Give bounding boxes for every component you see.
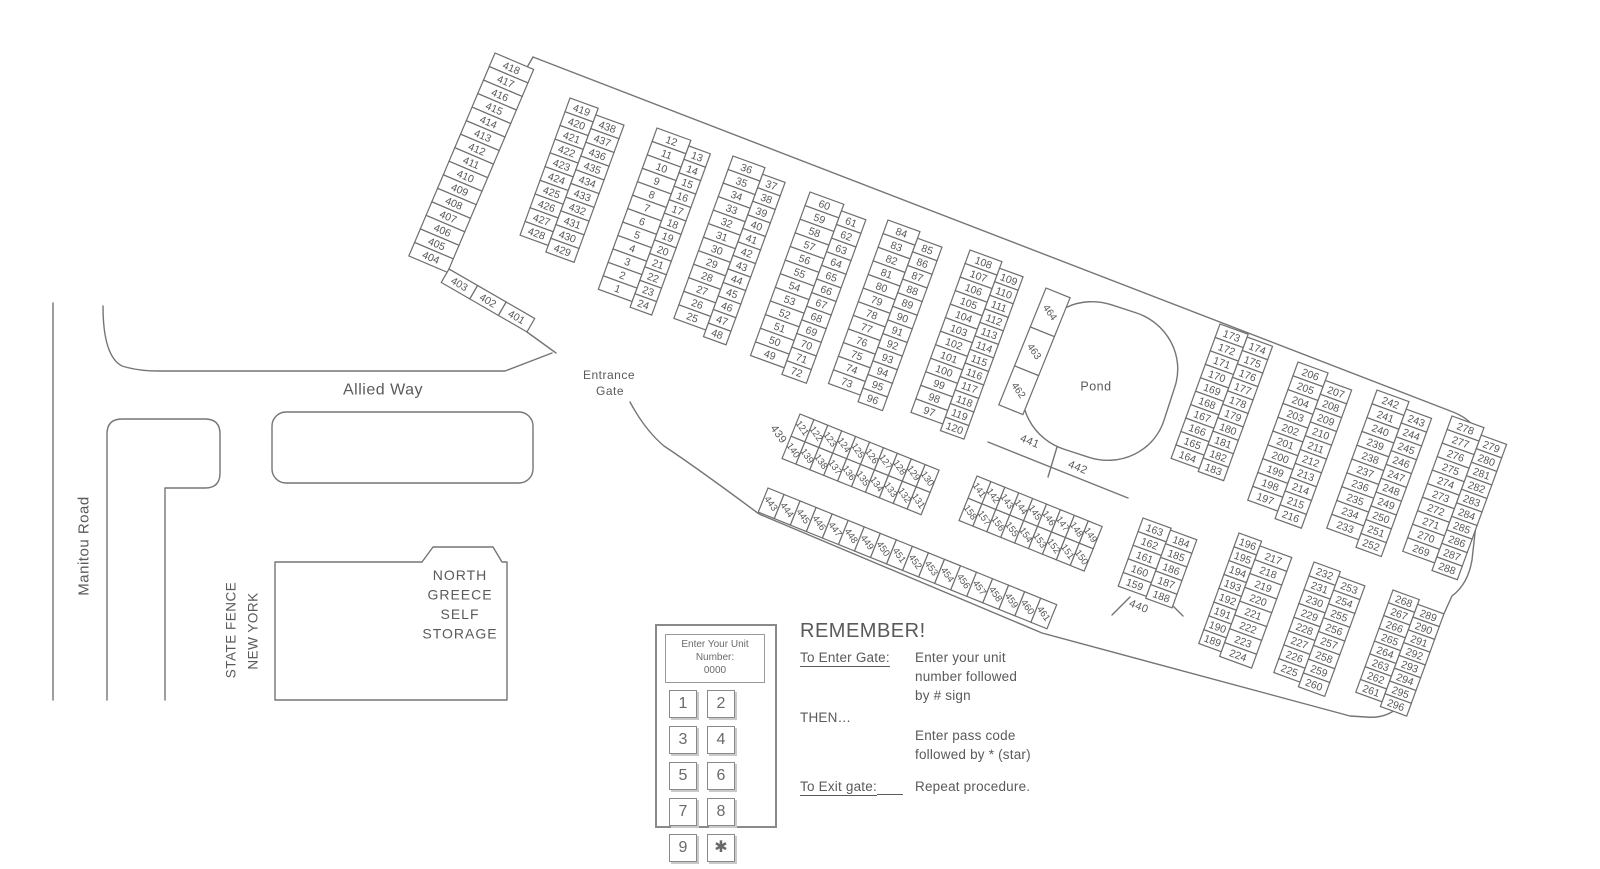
exit-text: Repeat procedure. [915,779,1030,794]
label-allied_way: Allied Way [343,382,423,399]
enter-gate-label-text: To Enter Gate: [800,650,890,667]
keypad: Enter Your Unit Number: 0000 123456789✱0… [655,624,777,828]
exit-gate-label: To Exit gate: [800,779,903,795]
enter-line-1: Enter your unit [915,650,1006,665]
then-label: THEN… [800,710,851,725]
keypad-key-1[interactable]: 1 [669,690,697,718]
label-road440: 440 [1127,598,1150,617]
keypad-key-2[interactable]: 2 [707,690,735,718]
road-island [272,412,533,483]
enter-line-3: by # sign [915,688,971,703]
road-median [107,419,220,700]
enter-line-2: number followed [915,669,1017,684]
building-name-line: SELF [440,606,479,622]
unit-block-s401: 403402401 [441,269,534,332]
unit-block-strip121: 1211401221391231381241371251361261351271… [780,413,941,515]
enter-gate-label: To Enter Gate: [800,650,890,665]
site-map-page: 4184174164154144134124114104094084074064… [0,0,1600,869]
label-road441: 441 [1018,433,1041,452]
exit-underline [877,780,903,795]
keypad-key-6[interactable]: 6 [707,762,735,790]
unit-block-b225: 2322312302292282272262252532542552562572… [1272,562,1367,696]
unit-block-b164: 1731721711701691681671661651641741751761… [1170,324,1273,481]
keypad-key-5[interactable]: 5 [669,762,697,790]
label-entrance_line2: Gate [596,384,624,398]
keypad-key-3[interactable]: 3 [669,726,697,754]
pass-line-2: followed by * (star) [915,747,1031,762]
building-name-line: NORTH [433,567,488,583]
exit-gate-label-text: To Exit gate: [800,779,877,796]
pass-line-1: Enter pass code [915,728,1016,743]
keypad-display: Enter Your Unit Number: 0000 [665,634,765,683]
keypad-key-9[interactable]: 9 [669,834,697,862]
keypad-key-4[interactable]: 4 [707,726,735,754]
road-441-442-divider [1048,447,1057,477]
label-manitou_road: Manitou Road [75,496,92,595]
keypad-key-✱[interactable]: ✱ [707,834,735,862]
unit-block-b159: 163162161160159184185186187188 [1118,518,1198,608]
instructions-heading: REMEMBER! [800,620,926,643]
building-name-line: STORAGE [422,626,497,642]
unit-block-b419: 4194204214224234244254264274284384374364… [518,98,627,262]
keypad-display-line3: 0000 [666,664,764,677]
unit-block-b189: 1961951941931921911901892172182192202212… [1197,533,1293,668]
label-entrance_line1: Entrance [583,368,635,382]
keypad-key-7[interactable]: 7 [669,798,697,826]
label-fence_line_left: STATE FENCE [224,582,239,679]
unit-block-strip141: 1411581421571431561441551451541461531471… [957,475,1104,572]
unit-block-b261: 2682672662652642632622612892902912922932… [1354,590,1446,716]
keypad-keys: 123456789✱0# [664,686,770,869]
label-pond: Pond [1080,379,1111,393]
unit-block-s404: 4184174164154144134124114104094084074064… [409,53,534,272]
keypad-key-8[interactable]: 8 [707,798,735,826]
label-fence_line_right: NEW YORK [246,592,261,669]
building-name-line: GREECE [427,587,492,603]
entrance-wedge [527,332,556,353]
allied-way-road-edge [103,306,552,371]
keypad-display-line1: Enter Your Unit [666,638,764,651]
site-map: 4184174164154144134124114104094084074064… [0,0,1600,869]
label-road439: 439 [768,423,789,446]
keypad-display-line2: Number: [666,651,764,664]
